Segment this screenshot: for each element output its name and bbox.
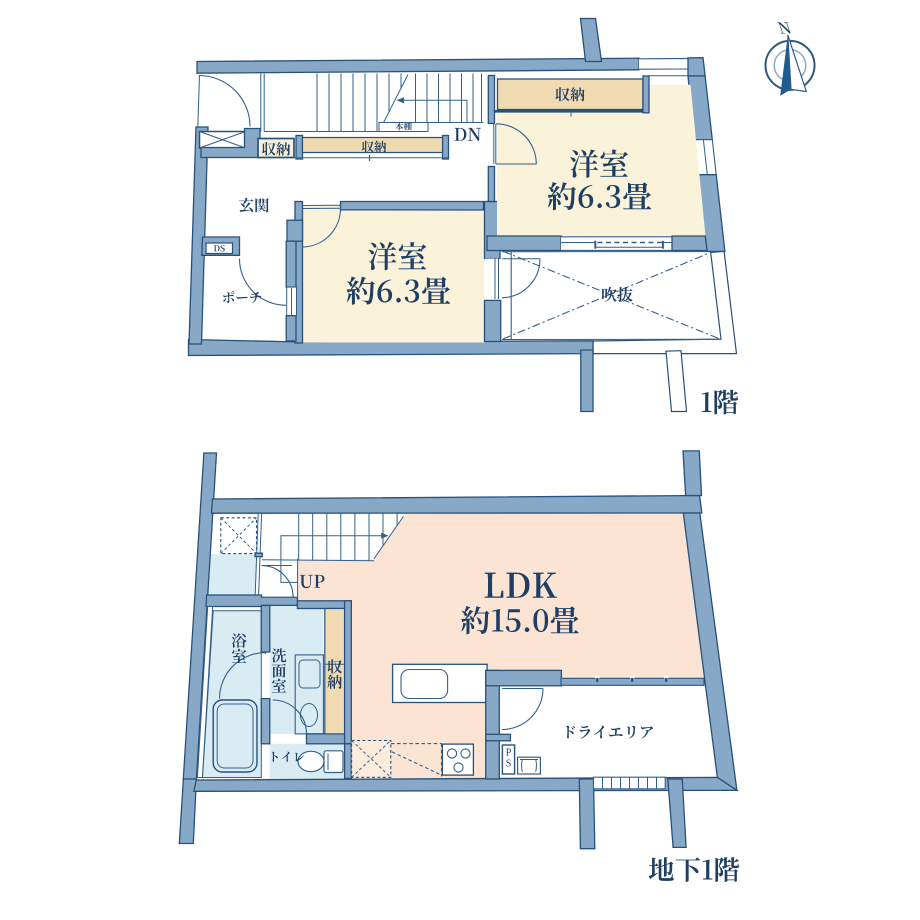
svg-text:P: P [506,748,512,759]
svg-text:S: S [506,759,512,770]
